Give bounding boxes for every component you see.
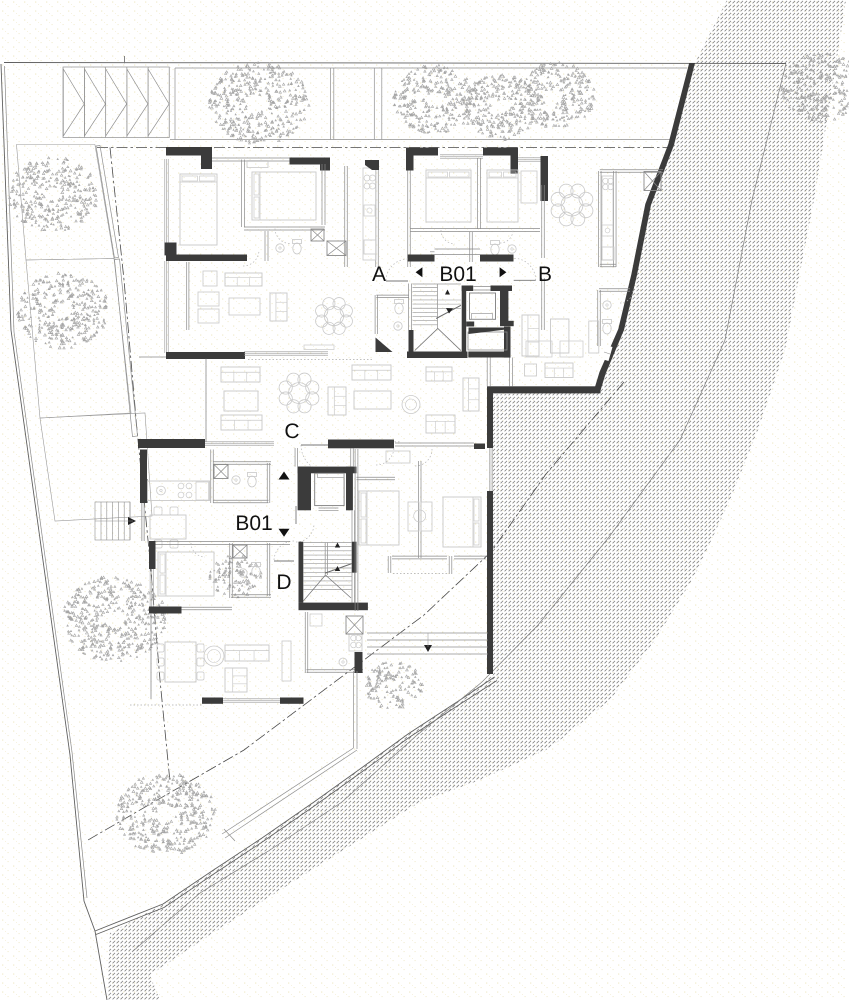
svg-text:D: D (276, 571, 291, 594)
svg-text:A: A (372, 263, 386, 286)
svg-text:B01: B01 (235, 512, 272, 535)
svg-text:C: C (284, 420, 299, 443)
svg-text:B: B (538, 263, 552, 286)
svg-text:B01: B01 (439, 263, 476, 286)
